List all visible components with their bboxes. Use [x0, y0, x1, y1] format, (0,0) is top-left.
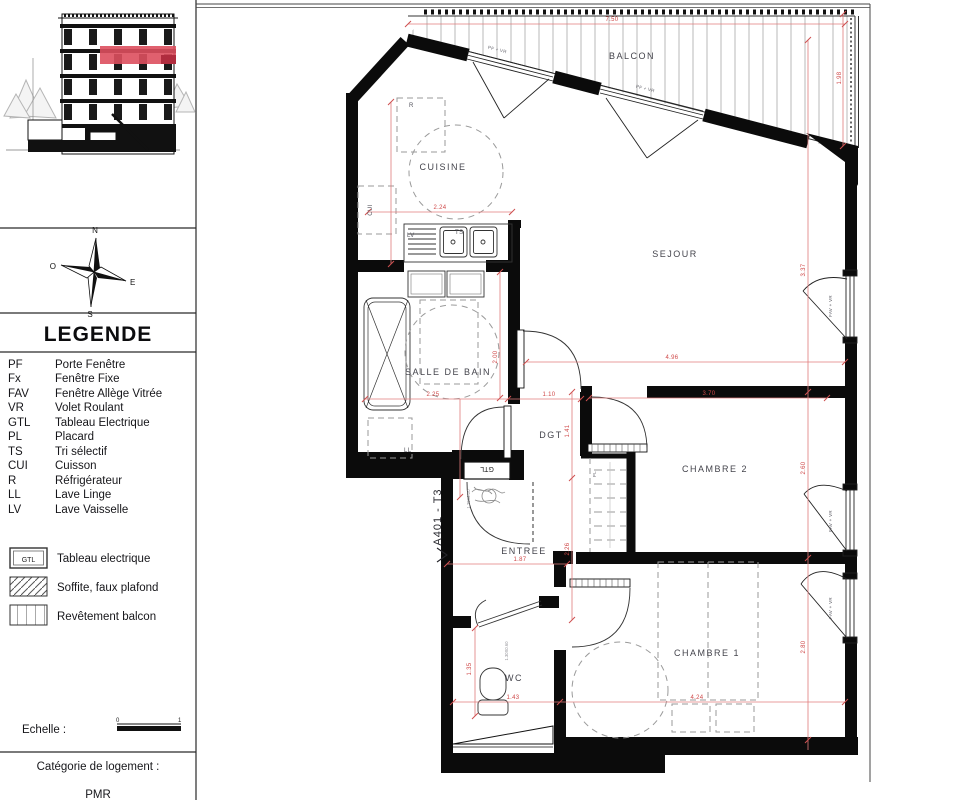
- balcony-pattern-box-icon: [10, 605, 47, 625]
- legend-symbol-label: Tableau electrique: [57, 553, 150, 565]
- fixture-label-placard: PL: [592, 471, 597, 477]
- legend-abbr: PL: [8, 431, 23, 443]
- dim-sejour-depth: 3.37: [801, 263, 807, 276]
- compass-south-label: S: [87, 310, 92, 319]
- compass-north-label: N: [92, 226, 98, 235]
- legend-abbreviations: PFPorte Fenêtre FxFenêtre Fixe FAVFenêtr…: [8, 359, 162, 516]
- balcony: [408, 12, 859, 149]
- window-label-fav-vr-sejour: FAV + VR: [828, 295, 833, 317]
- room-label-wc: WC: [505, 673, 523, 683]
- legend-label: Tri sélectif: [55, 446, 108, 458]
- legend-label: Fenêtre Fixe: [55, 373, 120, 385]
- scale-bar: Echelle : 0 1: [22, 718, 182, 736]
- highlighted-unit-marker-dark: [161, 55, 176, 64]
- room-label-chambre2: CHAMBRE 2: [682, 464, 748, 474]
- nightstand-outline: [716, 704, 754, 732]
- turning-circle-bath: [405, 305, 499, 399]
- category-label: Catégorie de logement :: [37, 761, 160, 773]
- compass-icon: N E S O: [50, 226, 136, 319]
- turning-circle-chambre1: [572, 642, 668, 738]
- room-label-sejour: SEJOUR: [652, 249, 698, 259]
- turning-circle-kitchen: [409, 125, 503, 219]
- bathroom-fixtures: [364, 298, 410, 410]
- legend-abbr: FAV: [8, 388, 29, 400]
- dim-bain-width: 2.25: [427, 392, 440, 398]
- floor-plan-sheet: N E S O LEGENDE PFPorte Fenêtre FxFenêtr…: [0, 0, 966, 800]
- room-label-salle-de-bain: SALLE DE BAIN: [405, 367, 491, 377]
- wc-toilet-icon: [478, 668, 508, 715]
- dim-cuisine-width: 2.24: [434, 205, 447, 211]
- scale-label: Echelle :: [22, 724, 66, 736]
- fixture-label-tri-selectif: TS: [455, 230, 463, 236]
- dim-placard-side: 1.41: [565, 424, 571, 437]
- legend-label: Réfrigérateur: [55, 475, 122, 487]
- dim-chambre1-width: 4.24: [691, 695, 704, 701]
- legend-label: Lave Linge: [55, 489, 111, 501]
- legend-abbr: GTL: [8, 417, 31, 429]
- unit-label: A401 - T3: [432, 488, 444, 545]
- room-labels: BALCON CUISINE SEJOUR SALLE DE BAIN DGT …: [405, 51, 748, 683]
- soffite-wedge: [453, 726, 553, 747]
- room-label-balcon: BALCON: [609, 51, 655, 61]
- fixture-label-cooktop: CUI: [368, 204, 374, 216]
- legend-label: Cuisson: [55, 460, 97, 472]
- legend-symbol-label: Revêtement balcon: [57, 611, 156, 623]
- door-annotations: 1.20X2.20 1.30X0.60: [466, 489, 509, 661]
- dim-wc-width: 1.43: [507, 695, 520, 701]
- scale-tick-1: 1: [178, 718, 182, 724]
- dim-chambre2-width: 3.70: [703, 391, 716, 397]
- dim-balcony-width: 7.50: [606, 17, 619, 23]
- dim-entree-width: 1.87: [514, 557, 527, 563]
- hatch-box-icon: [10, 577, 47, 596]
- legend-label: Porte Fenêtre: [55, 359, 125, 371]
- dim-balcony-depth: 1.98: [837, 71, 843, 84]
- dim-wc-depth: 1.35: [467, 662, 473, 675]
- gtl-cabinet-label: GTL: [480, 465, 494, 472]
- legend-label: Volet Roulant: [55, 402, 124, 414]
- room-label-cuisine: CUISINE: [419, 162, 466, 172]
- walls: [352, 41, 851, 760]
- legend-abbr: Fx: [8, 373, 21, 385]
- scale-tick-0: 0: [116, 718, 120, 724]
- legend-abbr: CUI: [8, 460, 28, 472]
- room-label-entree: ENTREE: [501, 546, 547, 556]
- balcony-hatch: [408, 16, 855, 149]
- dim-bain-depth: 2.00: [493, 350, 499, 363]
- dashed-furniture: [358, 98, 758, 738]
- legend-abbr: PF: [8, 359, 23, 371]
- room-label-chambre1: CHAMBRE 1: [674, 648, 740, 658]
- legend-title: LEGENDE: [44, 323, 153, 346]
- cooktop-outline: [358, 186, 396, 234]
- compass-west-label: O: [50, 262, 56, 271]
- window-label-fav-vr-chambre2: FAV + VR: [828, 510, 833, 532]
- dim-chambre2-depth: 2.60: [801, 461, 807, 474]
- compass-east-label: E: [130, 278, 135, 287]
- legend-abbr: TS: [8, 446, 23, 458]
- legend-symbol-label: Soffite, faux plafond: [57, 582, 158, 594]
- legend-symbols: GTL Tableau electrique Soffite, faux pla…: [10, 548, 158, 625]
- legend-abbr: VR: [8, 402, 24, 414]
- window-label-fav-vr-chambre1: FAV + VR: [828, 597, 833, 619]
- dim-dgt-width: 1.10: [543, 392, 556, 398]
- category-value: PMR: [85, 789, 111, 800]
- fixture-label-fridge: R: [409, 103, 414, 109]
- dim-chambre1-depth: 2.80: [801, 640, 807, 653]
- wc-door-size: 1.30X0.60: [504, 641, 509, 661]
- entry-door-size: 1.20X2.20: [466, 489, 471, 509]
- entry-stamp-scribble: [472, 487, 505, 503]
- legend-abbr: LL: [8, 489, 21, 501]
- legend-label: Placard: [55, 431, 94, 443]
- legend-abbr: LV: [8, 504, 22, 516]
- legend-label: Lave Vaisselle: [55, 504, 128, 516]
- fridge-outline: [397, 98, 445, 152]
- dim-sejour-width: 4.96: [666, 355, 679, 361]
- nightstand-outline: [672, 704, 710, 732]
- gtl-box-text: GTL: [22, 557, 36, 564]
- fixture-labels: R CUI LV TS LL PL: [368, 103, 597, 477]
- building-elevation: [4, 14, 195, 154]
- room-label-dgt: DGT: [539, 430, 563, 440]
- dim-entree-depth: 2.26: [565, 542, 571, 555]
- fixture-label-dishwasher: LV: [407, 233, 415, 239]
- legend-label: Tableau Electrique: [55, 417, 150, 429]
- gtl-cabinet: GTL: [464, 462, 510, 479]
- legend-abbr: R: [8, 475, 16, 487]
- legend-label: Fenêtre Allège Vitrée: [55, 388, 162, 400]
- fixture-label-washer: LL: [404, 448, 412, 454]
